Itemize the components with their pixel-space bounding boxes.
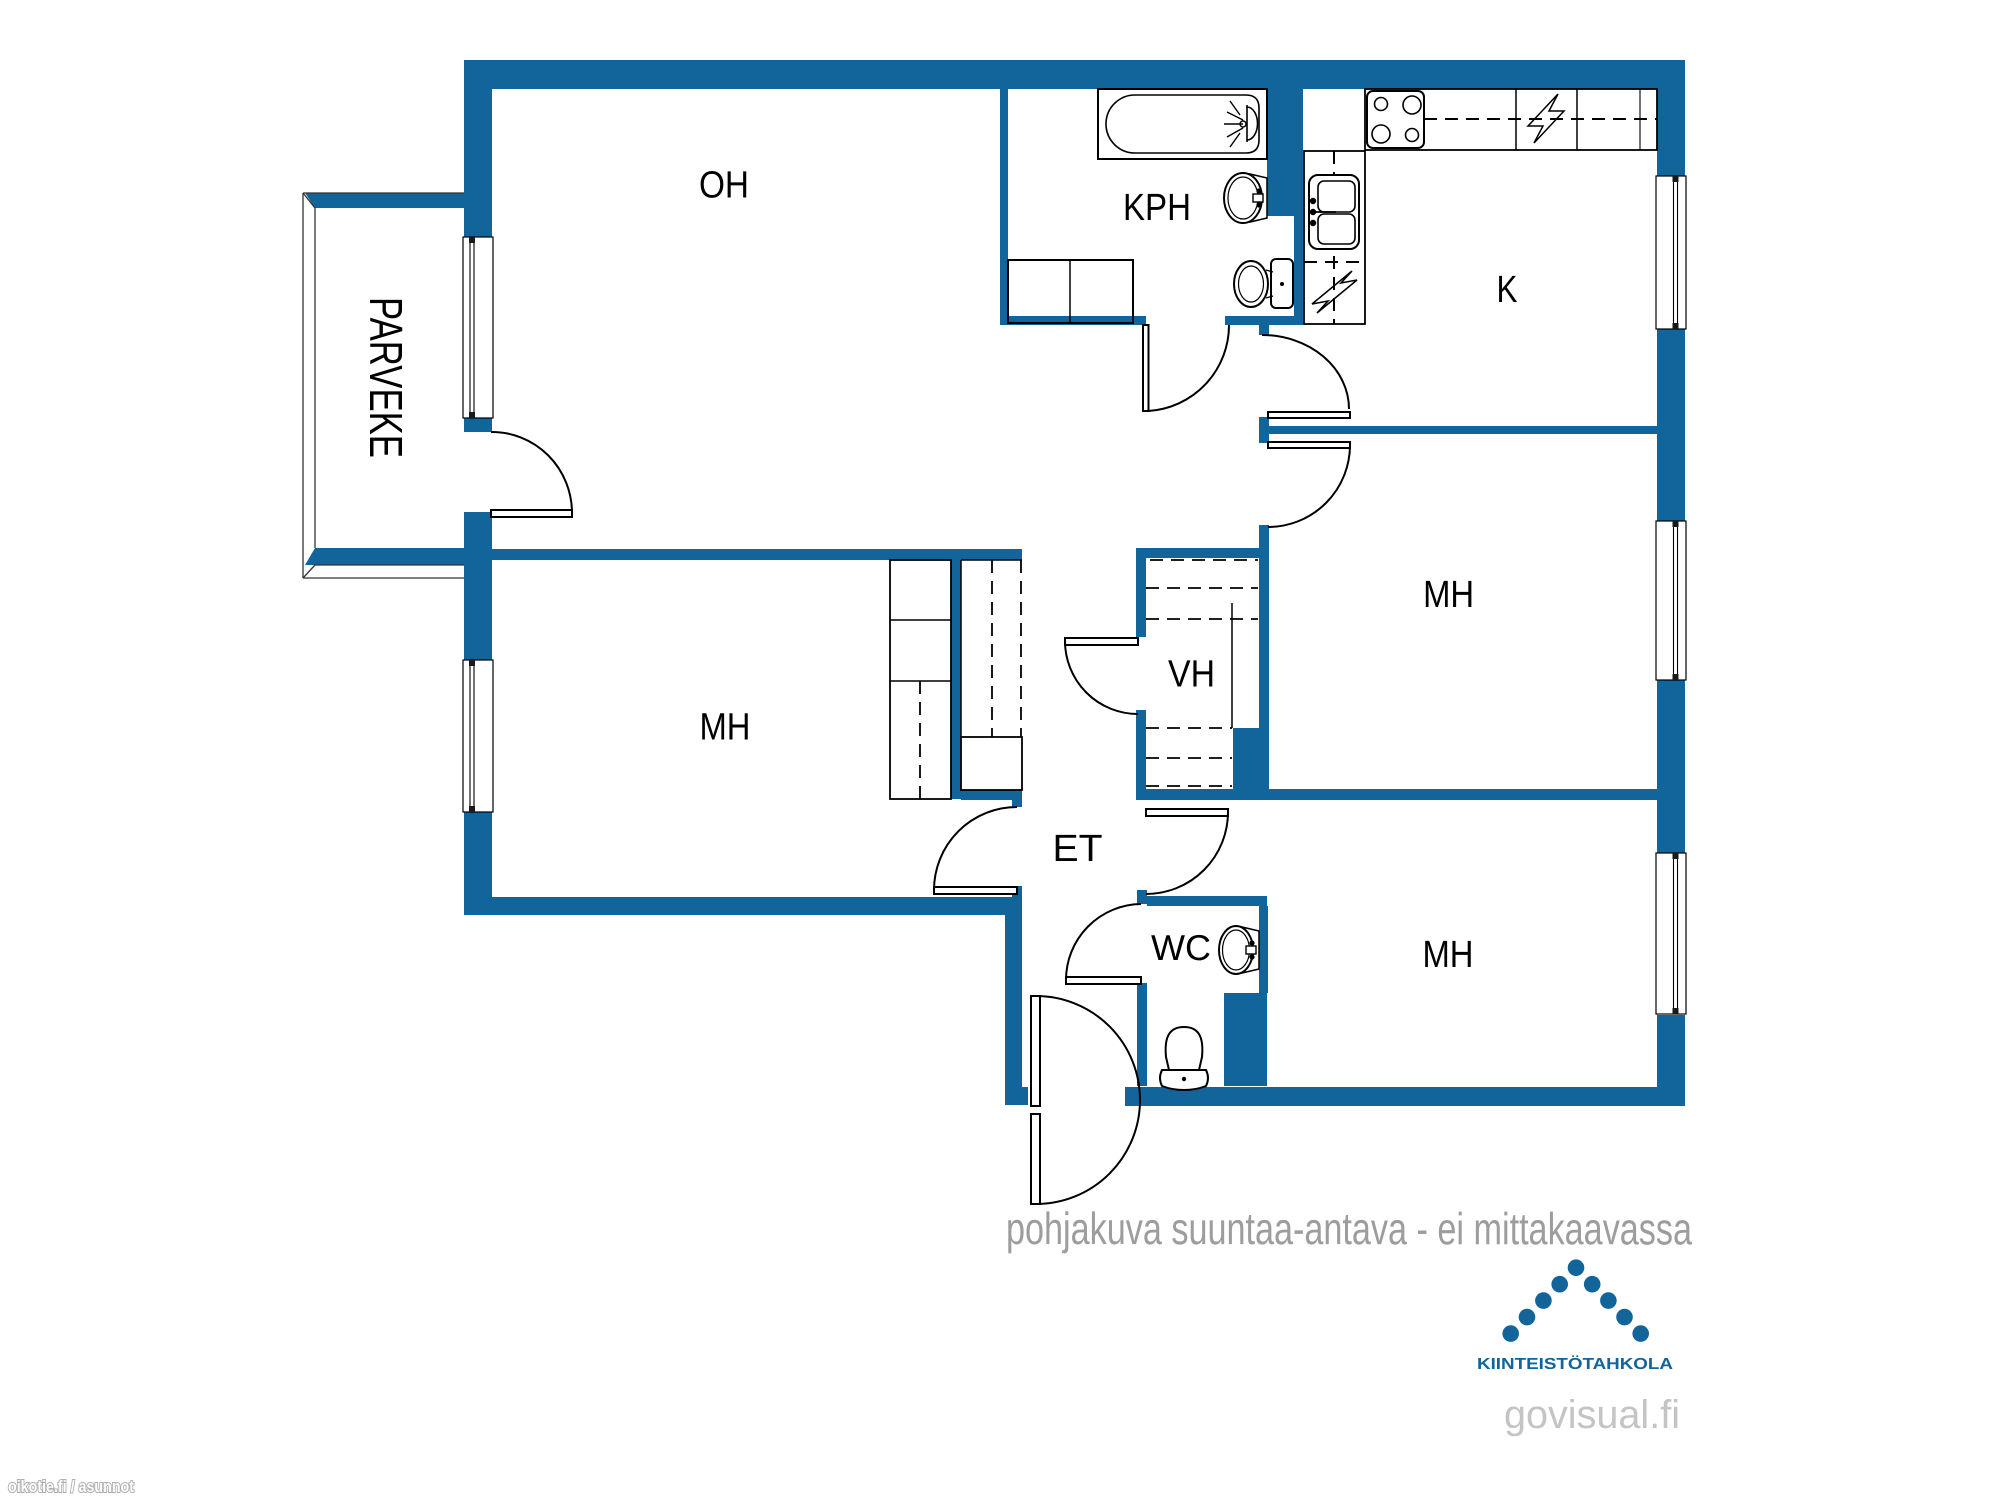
svg-text:KIINTEISTÖTAHKOLA: KIINTEISTÖTAHKOLA	[1477, 1354, 1674, 1373]
svg-text:MH: MH	[699, 706, 750, 748]
svg-text:WC: WC	[1151, 927, 1211, 968]
svg-text:MH: MH	[1422, 934, 1473, 976]
svg-text:KPH: KPH	[1123, 187, 1191, 229]
svg-text:govisual.fi: govisual.fi	[1504, 1393, 1680, 1437]
svg-text:K: K	[1496, 269, 1517, 311]
svg-text:pohjakuva suuntaa-antava - ei: pohjakuva suuntaa-antava - ei mittakaava…	[1006, 1203, 1693, 1254]
svg-text:oikotie.fi / asunnot: oikotie.fi / asunnot	[8, 1477, 134, 1496]
svg-text:PARVEKE: PARVEKE	[360, 297, 412, 458]
svg-text:MH: MH	[1423, 574, 1474, 616]
svg-text:OH: OH	[699, 164, 749, 206]
svg-text:ET: ET	[1052, 828, 1102, 870]
svg-text:VH: VH	[1168, 653, 1215, 695]
